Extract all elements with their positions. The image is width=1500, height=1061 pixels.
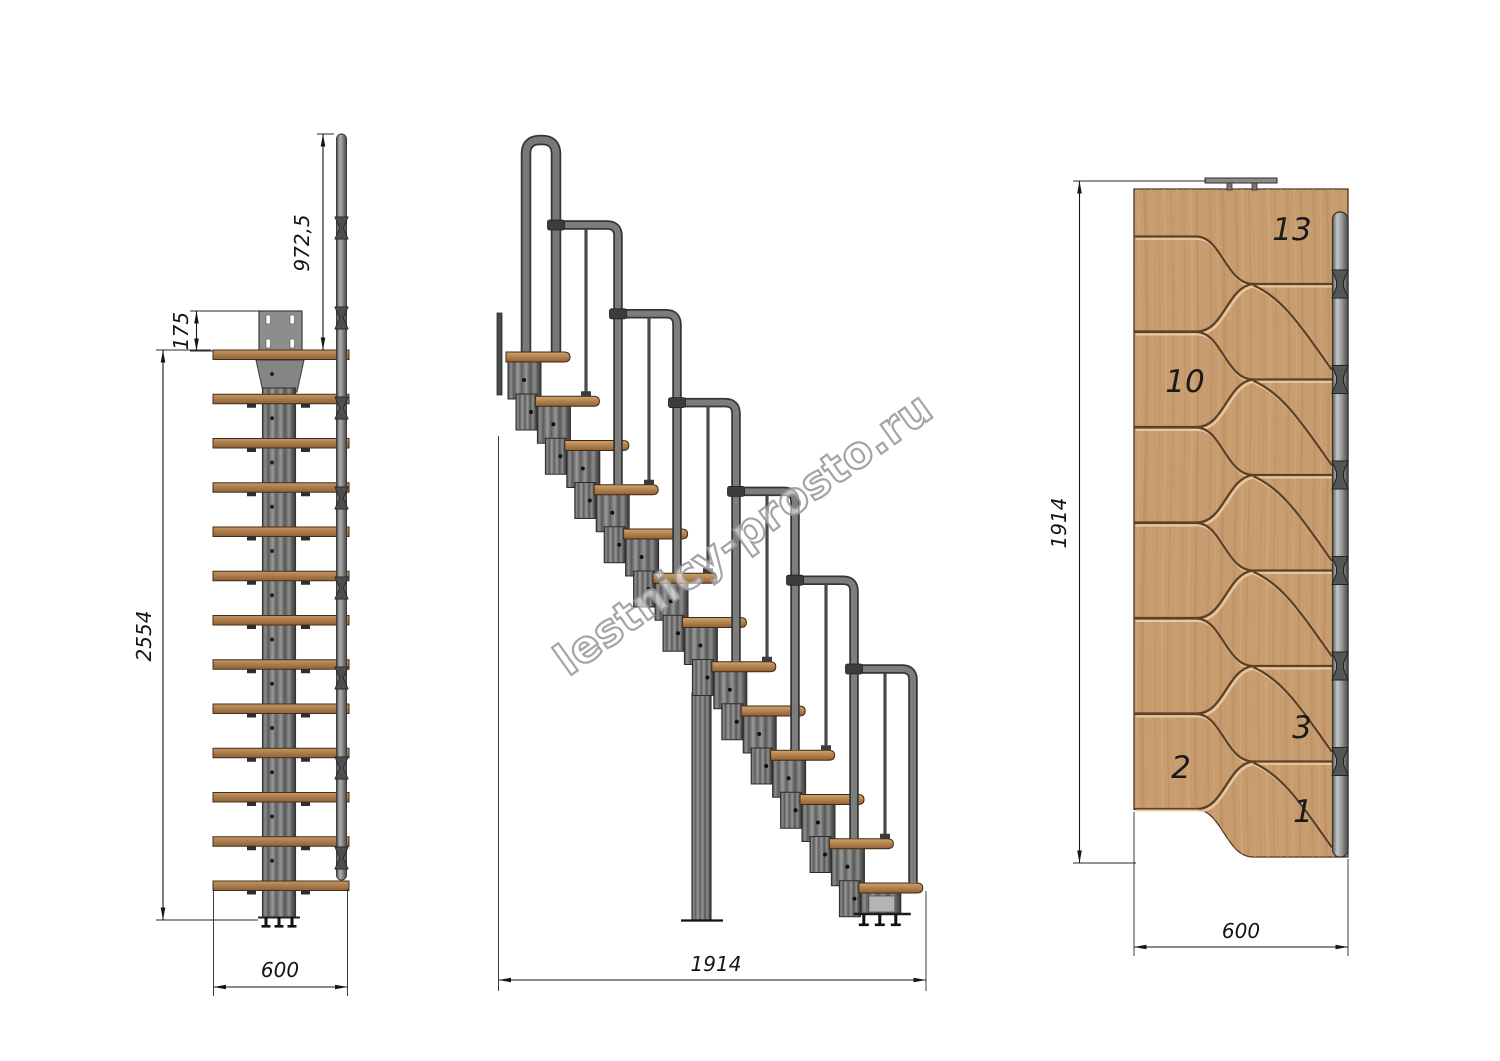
tread-bracket — [301, 581, 310, 585]
base-bolt-head — [275, 925, 284, 928]
module-bolt — [588, 499, 592, 503]
dim-arrowhead — [1134, 945, 1147, 950]
tread-number-13: 13 — [1272, 212, 1311, 248]
tread-bracket — [247, 625, 256, 629]
module-bolt — [757, 732, 761, 736]
module-bolt — [735, 720, 739, 724]
tread-bracket — [247, 758, 256, 762]
plate-hole — [290, 339, 295, 348]
tread-bracket — [301, 758, 310, 762]
base-bolt — [291, 917, 294, 926]
baluster-foot — [644, 480, 654, 485]
front-tread — [213, 793, 349, 803]
module-bolt — [845, 865, 849, 869]
drawing-canvas: 972,5 175 2554 600 1914 lestnicy-prosto.… — [0, 0, 1500, 1061]
baluster-foot — [821, 745, 831, 750]
front-tread — [213, 439, 349, 449]
step-module-lower — [604, 527, 625, 563]
module-bolt — [522, 378, 526, 382]
front-view — [213, 134, 349, 928]
rail-clamp — [610, 309, 627, 319]
wall-bracket-bar — [497, 313, 502, 395]
module-bolt — [852, 897, 856, 901]
plate-hole — [266, 315, 271, 324]
tread-bracket — [247, 448, 256, 452]
anchor-bolt — [878, 914, 881, 924]
module-bolt — [794, 808, 798, 812]
step-module-lower — [839, 881, 860, 917]
mast-bolt — [270, 638, 274, 642]
rail-clamp — [846, 664, 863, 674]
handrail-loop-outline — [526, 140, 556, 353]
module-bolt — [764, 764, 768, 768]
base-bolt — [265, 917, 268, 926]
mast-funnel — [256, 360, 304, 392]
mast-bolt — [270, 372, 274, 376]
mast-bolt — [270, 416, 274, 420]
tread-bracket — [247, 669, 256, 673]
base-bolt-head — [288, 925, 297, 928]
tread-bracket — [301, 492, 310, 496]
baluster-foot — [880, 834, 890, 839]
front-view-dimensions — [156, 134, 348, 996]
module-bolt — [823, 853, 827, 857]
tread-bracket — [301, 714, 310, 718]
mast-bolt — [270, 505, 274, 509]
anchor-bolt-head — [875, 924, 885, 927]
module-bolt — [676, 631, 680, 635]
base-bolt-head — [262, 925, 271, 928]
anchor-bolt-head — [891, 924, 901, 927]
step-module-lower — [751, 748, 772, 784]
dim-front-width-label: 600 — [261, 958, 299, 982]
dim-arrowhead — [914, 978, 927, 983]
tread-bracket — [247, 492, 256, 496]
module-bolt — [529, 410, 533, 414]
dim-arrowhead — [1077, 181, 1082, 194]
dim-arrowhead — [194, 311, 199, 324]
mast-bolt — [270, 593, 274, 597]
module-bolt — [610, 511, 614, 515]
tread-bracket — [301, 404, 310, 408]
tread-bracket — [247, 537, 256, 541]
tread-number-2: 2 — [1171, 750, 1191, 786]
front-tread — [213, 881, 349, 891]
base-bolt — [278, 917, 281, 926]
staircase-technical-drawing: 972,5 175 2554 600 1914 lestnicy-prosto.… — [0, 0, 1500, 1061]
mast-bolt — [270, 815, 274, 819]
side-tread — [829, 839, 893, 849]
plate-hole — [266, 339, 271, 348]
side-tread — [535, 396, 599, 406]
rail-clamp — [548, 220, 565, 230]
module-bolt — [558, 454, 562, 458]
step-module-lower — [722, 704, 743, 740]
mast-bolt — [270, 859, 274, 863]
side-tread — [712, 662, 776, 672]
dim-arrowhead — [194, 339, 199, 352]
module-bolt — [787, 776, 791, 780]
tread-bracket — [247, 846, 256, 850]
dim-arrowhead — [321, 134, 326, 147]
tread-number-1: 1 — [1293, 794, 1313, 830]
dim-arrowhead — [1336, 945, 1349, 950]
dim-arrowhead — [161, 350, 166, 363]
dim-handrail-height-label: 972,5 — [290, 214, 314, 271]
rail-clamp — [669, 398, 686, 408]
front-tread — [213, 394, 349, 404]
dim-plate-offset-label: 175 — [169, 312, 193, 350]
dim-total-height-label: 2554 — [132, 611, 156, 662]
tread-bracket — [247, 404, 256, 408]
tread-bracket — [301, 537, 310, 541]
front-tread — [213, 527, 349, 537]
module-bolt — [728, 688, 732, 692]
module-bolt — [816, 821, 820, 825]
tread-bracket — [247, 714, 256, 718]
dim-plan-width-label: 600 — [1222, 919, 1260, 943]
plan-view — [1134, 178, 1348, 865]
step-module-lower — [781, 792, 802, 828]
tread-bracket — [247, 581, 256, 585]
dim-arrowhead — [1077, 851, 1082, 864]
side-tread — [771, 750, 835, 760]
tread-bracket — [301, 669, 310, 673]
rail-clamp — [787, 575, 804, 585]
front-tread — [213, 704, 349, 714]
step-module-lower — [516, 394, 537, 430]
tread-bracket — [301, 846, 310, 850]
mast-bolt — [270, 682, 274, 686]
mount-plate — [259, 311, 302, 352]
front-tread — [213, 660, 349, 670]
front-tread — [213, 350, 349, 360]
step-module-lower — [810, 837, 831, 873]
module-bolt — [705, 676, 709, 680]
front-tread — [213, 571, 349, 581]
tread-bracket — [301, 448, 310, 452]
anchor-bolt — [894, 914, 897, 924]
base-module-panel — [869, 896, 895, 912]
mast-bolt — [270, 461, 274, 465]
tread-bracket — [301, 625, 310, 629]
dim-arrowhead — [161, 908, 166, 921]
plan-mount-bracket — [1205, 178, 1277, 183]
mast-bolt — [270, 770, 274, 774]
tread-bracket — [301, 802, 310, 806]
step-module-lower — [692, 660, 713, 696]
mast-bolt — [270, 549, 274, 553]
tread-number-10: 10 — [1165, 364, 1204, 400]
module-bolt — [581, 467, 585, 471]
baluster-foot — [762, 657, 772, 662]
side-tread — [859, 883, 923, 893]
plate-hole — [290, 315, 295, 324]
mast-bolt — [270, 726, 274, 730]
side-tread — [506, 352, 570, 362]
dim-arrowhead — [499, 978, 512, 983]
dim-plan-length-label: 1914 — [1047, 498, 1071, 549]
dim-arrowhead — [321, 338, 326, 351]
dim-side-length-label: 1914 — [691, 952, 742, 976]
tread-number-3: 3 — [1292, 710, 1312, 746]
front-tread — [213, 748, 349, 758]
anchor-bolt — [862, 914, 865, 924]
dim-arrowhead — [335, 985, 348, 990]
module-bolt — [640, 555, 644, 559]
support-leg — [692, 693, 711, 920]
front-tread — [213, 483, 349, 493]
module-bolt — [698, 644, 702, 648]
dim-arrowhead — [214, 985, 227, 990]
anchor-bolt-head — [859, 924, 869, 927]
tread-bracket — [301, 891, 310, 895]
side-tread — [594, 485, 658, 495]
baluster-foot — [581, 391, 591, 396]
bracket-stem — [1227, 183, 1232, 190]
module-bolt — [617, 543, 621, 547]
front-tread — [213, 837, 349, 847]
module-bolt — [551, 422, 555, 426]
tread-bracket — [247, 891, 256, 895]
rail-clamp — [728, 486, 745, 496]
step-module-lower — [575, 483, 596, 519]
front-tread — [213, 616, 349, 626]
bracket-stem — [1252, 183, 1257, 190]
step-module-lower — [545, 438, 566, 474]
tread-bracket — [247, 802, 256, 806]
